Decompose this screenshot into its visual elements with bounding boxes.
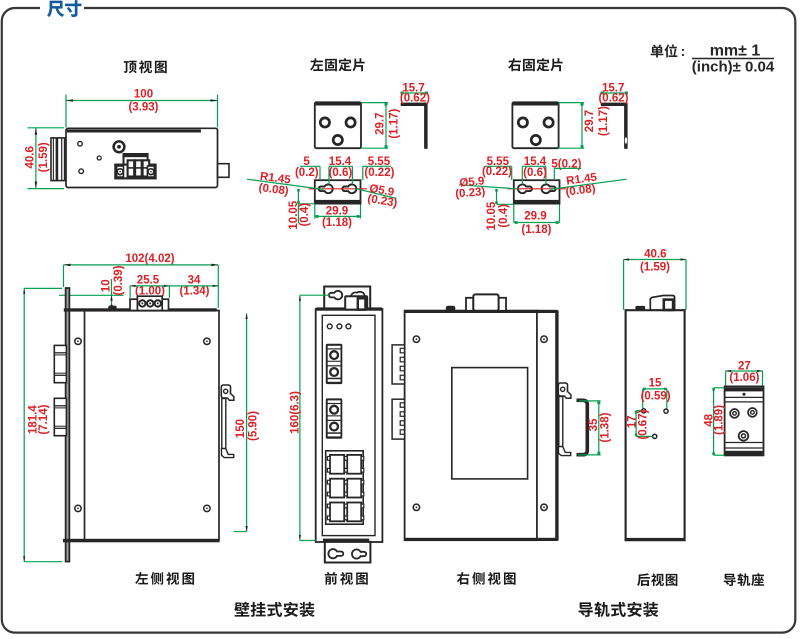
svg-text:(1.17): (1.17): [389, 109, 401, 139]
svg-text:10: 10: [101, 279, 113, 292]
svg-text:(7.14): (7.14): [38, 404, 50, 434]
svg-text:100: 100: [134, 89, 153, 101]
svg-text:(5.90): (5.90): [248, 411, 260, 441]
svg-text:(0.62): (0.62): [400, 92, 430, 104]
svg-text:(0.59): (0.59): [641, 390, 671, 402]
svg-text:(0.2): (0.2): [295, 167, 319, 179]
svg-text:(0.6): (0.6): [329, 167, 353, 179]
svg-text:(0.4): (0.4): [498, 204, 510, 228]
svg-text:(1.06): (1.06): [729, 372, 759, 384]
svg-text:(inch)± 0.04: (inch)± 0.04: [692, 59, 775, 76]
svg-text:(1.89): (1.89): [714, 405, 726, 435]
svg-text:(0.6): (0.6): [523, 167, 547, 179]
svg-text:(1.34): (1.34): [179, 285, 209, 297]
svg-text:(0.67): (0.67): [638, 409, 650, 439]
svg-text:(0.62): (0.62): [598, 92, 628, 104]
svg-text:15: 15: [649, 377, 662, 389]
svg-text::: :: [681, 43, 686, 59]
svg-text:29.9: 29.9: [326, 206, 348, 218]
svg-text:(1.17): (1.17): [598, 106, 610, 136]
svg-text:160(6.3): 160(6.3): [290, 391, 302, 434]
svg-text:40.6: 40.6: [644, 249, 666, 261]
svg-text:(1.59): (1.59): [38, 142, 50, 172]
svg-text:(1.59): (1.59): [640, 262, 670, 274]
svg-text:29.9: 29.9: [524, 210, 546, 222]
svg-text:10.05: 10.05: [486, 201, 498, 230]
svg-text:102(4.02): 102(4.02): [125, 253, 174, 265]
svg-text:(1.18): (1.18): [322, 217, 352, 229]
svg-text:(3.93): (3.93): [128, 102, 158, 114]
svg-text:150: 150: [235, 419, 247, 438]
svg-text:29.7: 29.7: [374, 113, 386, 135]
svg-text:(0.22): (0.22): [482, 166, 512, 178]
svg-text:(1.38): (1.38): [600, 412, 612, 442]
svg-text:35: 35: [588, 418, 600, 431]
svg-text:(0.22): (0.22): [364, 167, 394, 179]
svg-text:40.6: 40.6: [25, 146, 37, 168]
svg-text:(0.4): (0.4): [299, 203, 311, 227]
svg-text:29.7: 29.7: [584, 110, 596, 132]
svg-text:(1.18): (1.18): [521, 224, 551, 236]
svg-text:(0.39): (0.39): [113, 265, 125, 295]
svg-text:mm± 1: mm± 1: [710, 42, 761, 59]
